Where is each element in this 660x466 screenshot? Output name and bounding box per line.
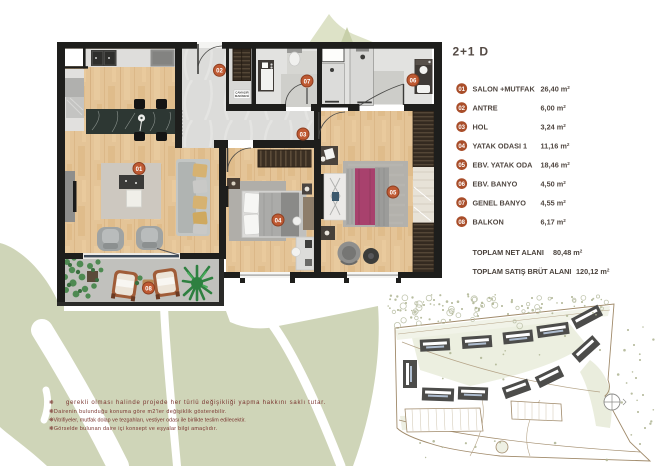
svg-text:4,50 m2: 4,50 m2 <box>541 179 567 188</box>
svg-text:01: 01 <box>136 167 143 173</box>
svg-text:YATAK ODASI 1: YATAK ODASI 1 <box>473 141 528 150</box>
svg-text:04: 04 <box>275 218 282 224</box>
svg-text:120,12 m2: 120,12 m2 <box>576 267 610 276</box>
svg-text:03: 03 <box>300 132 307 138</box>
svg-text:06: 06 <box>410 78 417 84</box>
svg-text:EBV. YATAK ODA: EBV. YATAK ODA <box>473 160 534 169</box>
svg-text:gerekli olması halinde projede: gerekli olması halinde projede her türlü… <box>66 400 326 406</box>
svg-text:80,48 m2: 80,48 m2 <box>553 248 583 257</box>
svg-text:04: 04 <box>458 144 465 150</box>
svg-text:26,40 m2: 26,40 m2 <box>541 84 571 93</box>
svg-text:❋: ❋ <box>49 400 54 406</box>
svg-text:4,55 m2: 4,55 m2 <box>541 198 567 207</box>
svg-text:❋Dairenin bulunduğu konuma gör: ❋Dairenin bulunduğu konuma göre m2'ler d… <box>49 409 227 415</box>
svg-text:HOL: HOL <box>473 122 489 131</box>
svg-text:03: 03 <box>458 125 465 131</box>
svg-text:02: 02 <box>458 106 465 112</box>
svg-text:11,16 m2: 11,16 m2 <box>541 141 570 150</box>
svg-text:EBV. BANYO: EBV. BANYO <box>473 179 518 188</box>
svg-text:18,46 m2: 18,46 m2 <box>541 160 571 169</box>
svg-text:3,24 m2: 3,24 m2 <box>541 122 567 131</box>
svg-text:06: 06 <box>458 182 465 188</box>
svg-text:❋Görselde bulunan daire içi ko: ❋Görselde bulunan daire içi konsept ve e… <box>49 426 217 432</box>
svg-text:07: 07 <box>304 79 311 85</box>
svg-text:TOPLAM NET ALANI: TOPLAM NET ALANI <box>473 248 544 257</box>
svg-text:02: 02 <box>216 69 223 75</box>
svg-text:6,17 m2: 6,17 m2 <box>541 217 567 226</box>
svg-text:GENEL BANYO: GENEL BANYO <box>473 198 527 207</box>
svg-text:MAKİNESİ: MAKİNESİ <box>235 94 249 98</box>
svg-text:2+1 D: 2+1 D <box>453 45 489 59</box>
svg-text:❋Vitrifiyeler, mutfak dolap ve: ❋Vitrifiyeler, mutfak dolap ve tezgahlar… <box>49 418 246 424</box>
svg-text:07: 07 <box>458 201 465 207</box>
svg-text:6,00 m2: 6,00 m2 <box>541 103 567 112</box>
svg-text:05: 05 <box>458 163 465 169</box>
svg-text:BALKON: BALKON <box>473 217 504 226</box>
svg-text:TOPLAM SATIŞ BRÜT ALANI: TOPLAM SATIŞ BRÜT ALANI <box>473 267 572 276</box>
svg-text:01: 01 <box>458 87 465 93</box>
svg-text:ANTRE: ANTRE <box>473 103 498 112</box>
svg-text:08: 08 <box>145 286 152 292</box>
svg-text:05: 05 <box>390 190 397 196</box>
svg-text:SALON +MUTFAK: SALON +MUTFAK <box>473 84 536 93</box>
svg-text:08: 08 <box>458 220 465 226</box>
